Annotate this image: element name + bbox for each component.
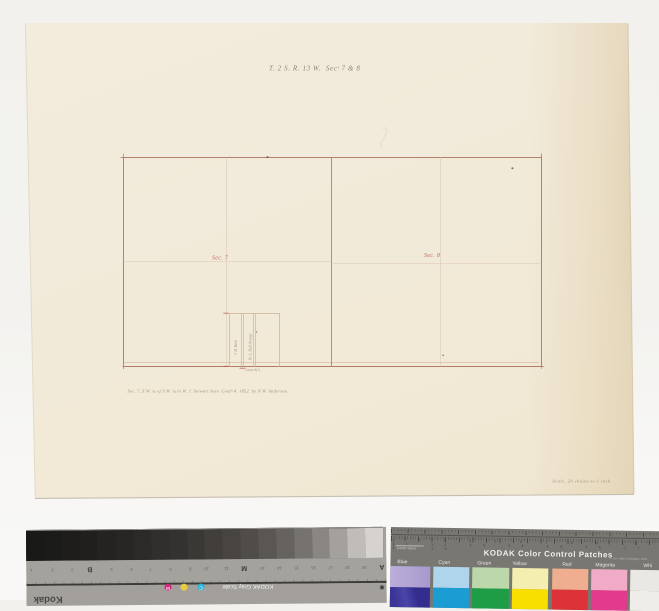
svg-text:Sec. 8: Sec. 8	[424, 253, 440, 259]
svg-text:J. H. Beck: J. H. Beck	[234, 340, 238, 355]
svg-text:Casserly’s: Casserly’s	[245, 368, 261, 372]
svg-text:T. 2 S. R. 13 W. Secᵗ 7 & 8: T. 2 S. R. 13 W. Secᵗ 7 & 8	[269, 64, 360, 72]
svg-text:Sec. 7: Sec. 7	[212, 256, 229, 262]
svg-text:W. A. Dall Orange: W. A. Dall Orange	[249, 333, 253, 360]
svg-text:Sec. 7, S.W. ¼ of S.W. ¼ in W.: Sec. 7, S.W. ¼ of S.W. ¼ in W. J. Stewar…	[128, 388, 289, 394]
svg-text:Scale, 20 chains to 1 inch.: Scale, 20 chains to 1 inch.	[553, 479, 613, 485]
